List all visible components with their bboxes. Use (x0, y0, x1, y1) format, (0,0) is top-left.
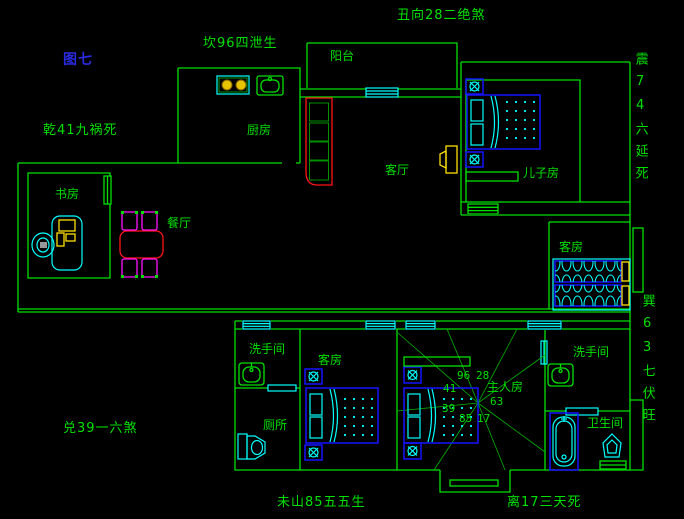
dining-table (120, 231, 163, 258)
room-label-toilet-room: 厕所 (263, 419, 287, 432)
room-label-bathroom: 卫生间 (587, 417, 623, 430)
room-label-master-room: 主人房 (487, 381, 523, 394)
floorplan-drawing (0, 0, 684, 519)
window-corridor-4 (527, 320, 562, 330)
nightstand-fan (404, 367, 421, 383)
nightstand-fan (305, 369, 322, 384)
sons-room-bed (467, 95, 540, 149)
window-corridor-3 (405, 320, 436, 330)
window-sons-room (467, 203, 499, 215)
window-corridor-1 (242, 320, 271, 330)
computer (57, 220, 75, 246)
compass-number-39: 39 (442, 403, 455, 415)
room-label-washroom-left: 洗手间 (249, 343, 285, 356)
nightstand-fan (305, 445, 322, 460)
toilet (238, 434, 265, 459)
wash-basin (548, 364, 573, 386)
sofa (306, 98, 332, 185)
guest-bed (306, 388, 378, 443)
fengshui-label-zhen: 震74六延死 (633, 52, 647, 188)
wash-basin (239, 363, 264, 385)
toilet (600, 434, 626, 469)
dining-chairs (121, 211, 158, 278)
room-label-dining-room: 餐厅 (167, 217, 191, 230)
door-strip-bathroom (566, 408, 598, 415)
fengshui-label-chou: 丑向28二绝煞 (397, 9, 486, 23)
compass-number-63: 63 (490, 396, 503, 408)
fengshui-label-xun: 巽63七伏旺 (640, 294, 654, 430)
nightstand-fan (466, 152, 483, 167)
fengshui-label-qian: 乾41九祸死 (43, 124, 118, 138)
window-balcony (366, 87, 398, 98)
compass-number-28: 28 (476, 370, 489, 382)
room-label-kitchen: 厨房 (247, 124, 271, 137)
fengshui-label-kan: 坎96四泄生 (203, 37, 278, 51)
entry-step (450, 480, 498, 486)
window-washroom-side (541, 341, 547, 364)
window-corridor-2 (365, 320, 396, 330)
compass-number-96: 96 (457, 370, 470, 382)
shelf (404, 357, 470, 366)
nightstand-fan (466, 79, 483, 94)
room-label-washroom-right: 洗手间 (573, 346, 609, 359)
window-study (103, 176, 112, 204)
single-beds (553, 259, 630, 310)
room-label-sons-room: 儿子房 (523, 167, 559, 180)
compass-number-41: 41 (443, 383, 456, 395)
tv-set (440, 146, 457, 173)
bathtub (550, 413, 578, 470)
fengshui-label-dui: 兑39一六煞 (63, 422, 138, 436)
shelf (466, 172, 518, 181)
room-label-study: 书房 (55, 188, 79, 201)
desk-chair (32, 233, 54, 257)
fengshui-label-li: 离17三天死 (507, 496, 582, 510)
stove (217, 76, 249, 94)
door-strip-toilet (268, 385, 296, 391)
figure-number-label: 图七 (63, 53, 93, 68)
kitchen-sink (257, 76, 283, 95)
room-label-guest-room-bottom: 客房 (318, 354, 342, 367)
room-label-balcony: 阳台 (330, 50, 354, 63)
room-label-guest-room-right: 客房 (559, 241, 583, 254)
compass-number-85: 85 (459, 413, 472, 425)
room-label-living-room: 客厅 (385, 164, 409, 177)
fengshui-label-wei: 未山85五五生 (277, 496, 366, 510)
cad-canvas[interactable]: 图七 丑向28二绝煞 坎96四泄生 乾41九祸死 震74六延死 巽63七伏旺 兑… (0, 0, 684, 519)
compass-number-17: 17 (477, 413, 490, 425)
nightstand-fan (404, 443, 421, 459)
